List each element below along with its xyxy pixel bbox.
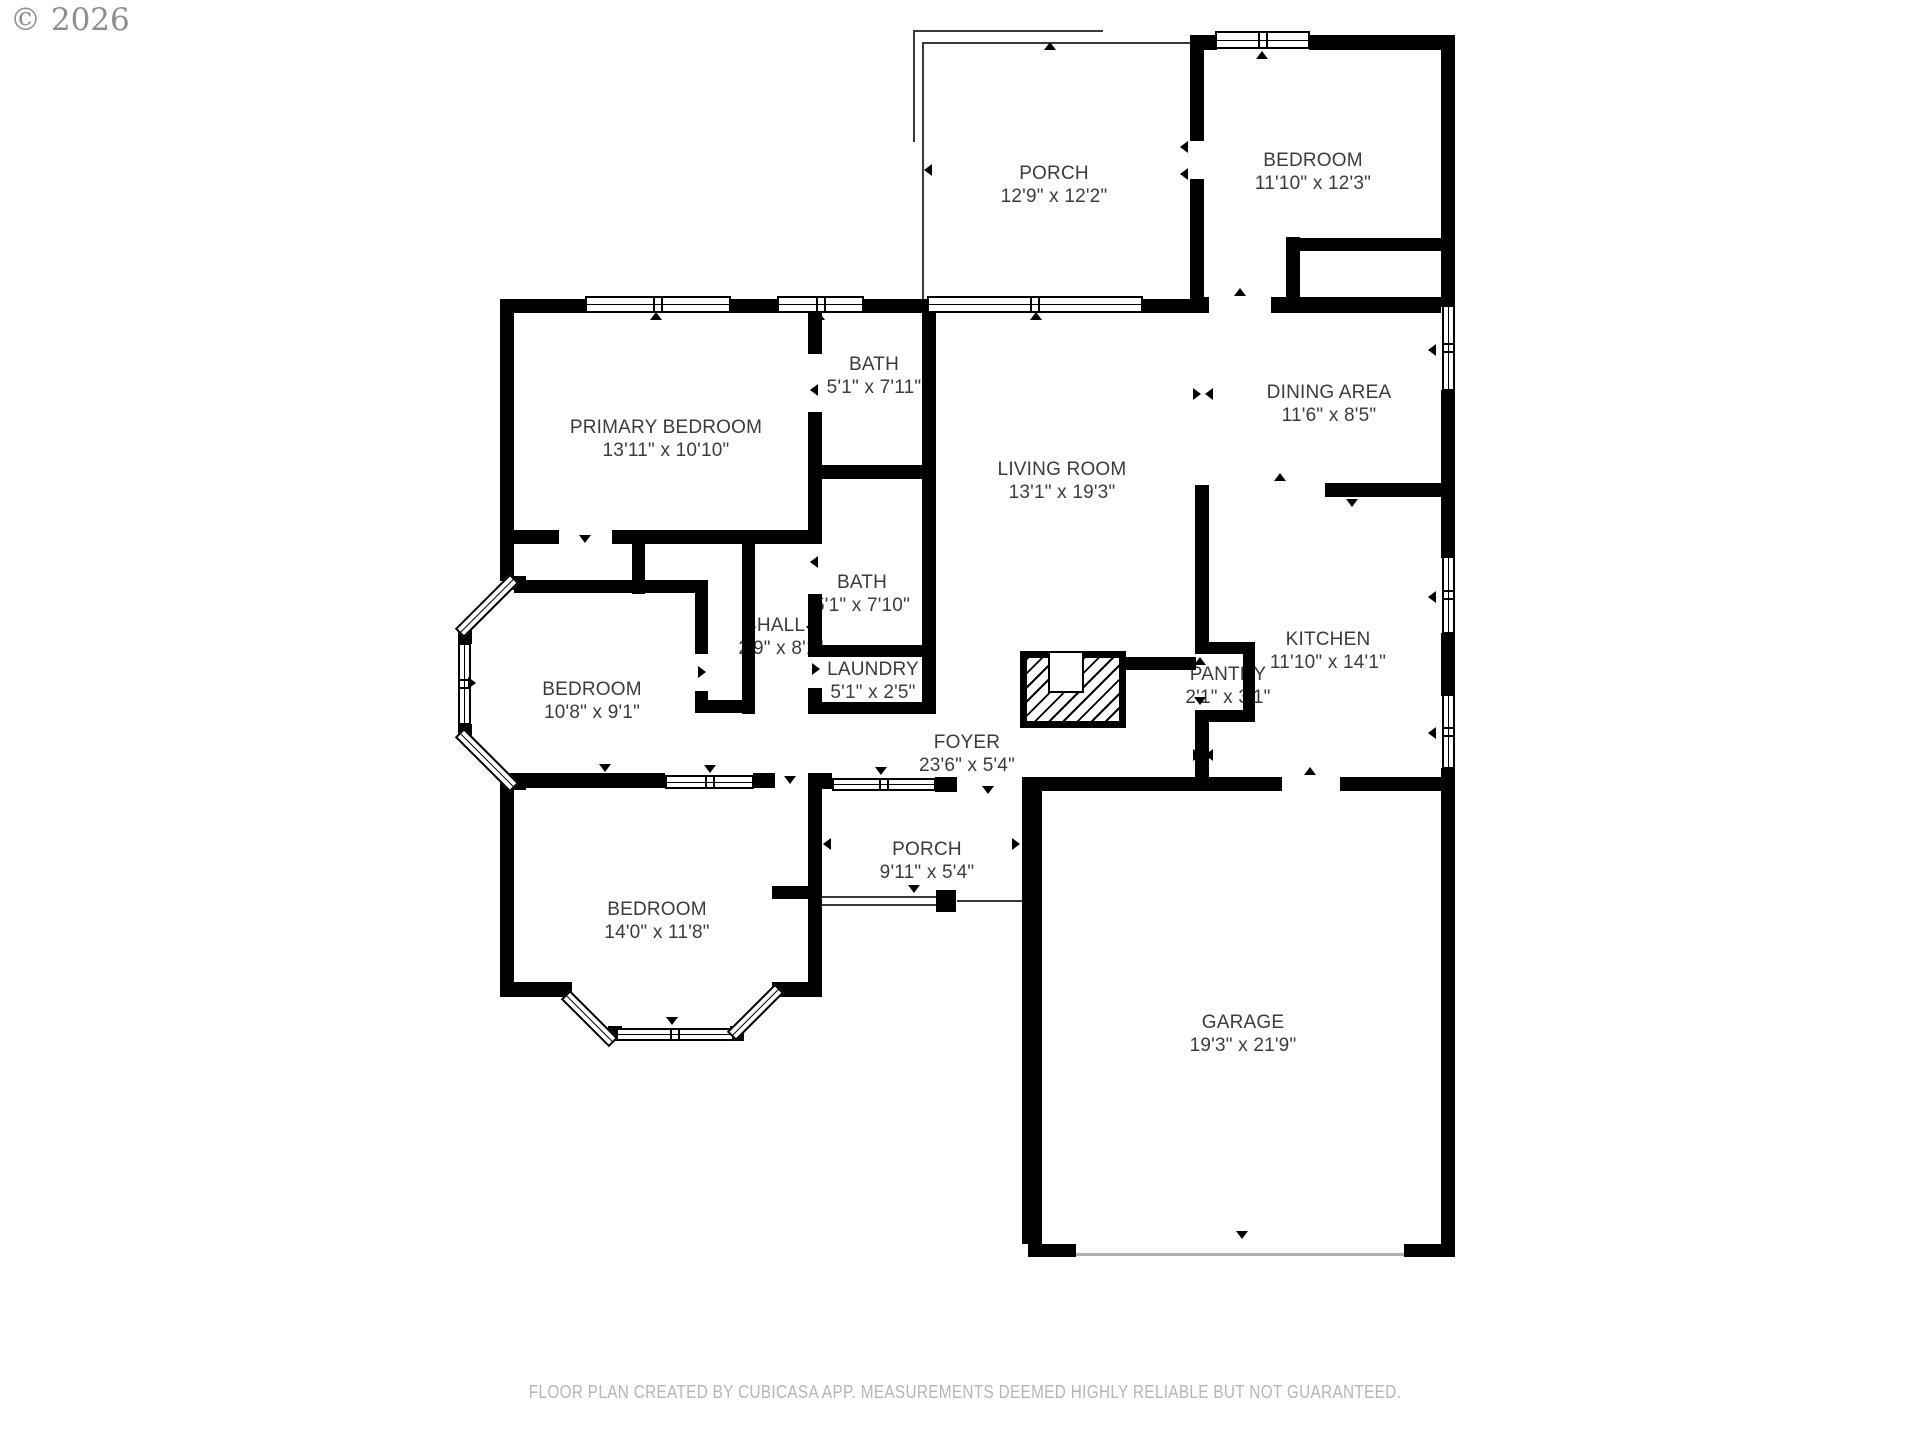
wall bbox=[1126, 657, 1196, 670]
window bbox=[585, 296, 731, 313]
door-arrow bbox=[1028, 1010, 1036, 1022]
door-arrow bbox=[1194, 697, 1206, 705]
room-dimensions: 23'6" x 5'4" bbox=[919, 755, 1015, 777]
door-arrow bbox=[982, 786, 994, 794]
door-arrow bbox=[599, 764, 611, 772]
wall bbox=[500, 982, 572, 997]
porch-outline bbox=[922, 42, 1190, 44]
window bbox=[1442, 556, 1455, 634]
door-arrow bbox=[1428, 344, 1436, 356]
wall bbox=[1441, 390, 1455, 485]
door-arrow bbox=[810, 384, 818, 396]
door-arrow bbox=[806, 621, 814, 633]
room-label-bedroom-bottom: BEDROOM 14'0" x 11'8" bbox=[604, 899, 709, 944]
door-arrow bbox=[1236, 1231, 1248, 1239]
room-name: FOYER bbox=[919, 732, 1015, 754]
copyright-text: © 2026 bbox=[10, 2, 130, 38]
room-label-laundry: LAUNDRY 5'1" x 2'5" bbox=[827, 659, 919, 704]
floor-plan: © 2026 PORCH 12'9" x 12'2" BEDROOM 11'10… bbox=[0, 0, 1920, 1440]
door-arrow bbox=[1234, 288, 1246, 296]
porch-outline bbox=[822, 904, 940, 906]
wall bbox=[1286, 237, 1300, 300]
window bbox=[927, 296, 1143, 313]
door-arrow bbox=[908, 885, 920, 893]
wall bbox=[1309, 35, 1455, 50]
room-dimensions: 11'10" x 14'1" bbox=[1270, 652, 1386, 674]
wall bbox=[863, 299, 927, 313]
wall bbox=[1441, 35, 1455, 307]
bay-window bbox=[561, 990, 618, 1047]
wall bbox=[1190, 49, 1204, 141]
room-name: LAUNDRY bbox=[827, 659, 919, 681]
wall bbox=[695, 700, 742, 713]
window bbox=[1442, 694, 1455, 769]
room-dimensions: 11'6" x 8'5" bbox=[1267, 405, 1392, 427]
door-arrow bbox=[813, 312, 825, 320]
wall bbox=[808, 594, 822, 645]
wall bbox=[1195, 710, 1255, 722]
wall bbox=[730, 299, 777, 313]
room-label-kitchen: KITCHEN 11'10" x 14'1" bbox=[1270, 629, 1386, 674]
door-arrow bbox=[579, 535, 591, 543]
wall bbox=[1441, 768, 1455, 791]
wall bbox=[1340, 777, 1441, 791]
door-arrow bbox=[1205, 749, 1213, 761]
door-arrow bbox=[875, 767, 887, 775]
room-dimensions: 13'1" x 19'3" bbox=[998, 482, 1127, 504]
room-name: BEDROOM bbox=[542, 679, 642, 701]
bay-window bbox=[455, 728, 519, 792]
wall bbox=[753, 773, 775, 788]
door-arrow bbox=[650, 312, 662, 320]
door-arrow bbox=[1194, 657, 1206, 665]
room-label-foyer: FOYER 23'6" x 5'4" bbox=[919, 732, 1015, 777]
footer-disclaimer: FLOOR PLAN CREATED BY CUBICASA APP. MEAS… bbox=[529, 1382, 1401, 1403]
door-arrow bbox=[698, 666, 706, 678]
room-name: BEDROOM bbox=[1255, 150, 1371, 172]
room-name: BEDROOM bbox=[604, 899, 709, 921]
room-label-primary-bedroom: PRIMARY BEDROOM 13'11" x 10'10" bbox=[570, 417, 762, 462]
door-arrow bbox=[1346, 499, 1358, 507]
wall bbox=[1441, 483, 1455, 558]
door-arrow bbox=[810, 556, 818, 568]
garage-door-line bbox=[1076, 1253, 1404, 1256]
wall bbox=[1441, 633, 1455, 696]
door-arrow bbox=[1256, 51, 1268, 59]
porch-outline bbox=[913, 30, 915, 142]
room-name: PORCH bbox=[1001, 163, 1108, 185]
door-arrow bbox=[502, 421, 510, 433]
porch-outline bbox=[913, 30, 1103, 32]
room-label-porch-top: PORCH 12'9" x 12'2" bbox=[1001, 163, 1108, 208]
wall bbox=[1404, 1244, 1455, 1257]
room-label-bedroom-mid: BEDROOM 10'8" x 9'1" bbox=[542, 679, 642, 724]
room-name: GARAGE bbox=[1190, 1012, 1297, 1034]
bay-window bbox=[455, 574, 519, 638]
wall bbox=[1042, 777, 1282, 791]
room-name: BATH bbox=[814, 572, 910, 594]
door-arrow bbox=[812, 663, 820, 675]
room-label-garage: GARAGE 19'3" x 21'9" bbox=[1190, 1012, 1297, 1057]
door-arrow bbox=[1030, 312, 1042, 320]
fireplace-notch bbox=[1048, 651, 1084, 693]
room-label-porch-bottom: PORCH 9'11" x 5'4" bbox=[880, 839, 975, 884]
window bbox=[1215, 31, 1310, 49]
room-name: BATH bbox=[827, 354, 922, 376]
room-dimensions: 12'9" x 12'2" bbox=[1001, 186, 1108, 208]
door-arrow bbox=[704, 765, 716, 773]
bay-window bbox=[727, 984, 784, 1041]
window bbox=[777, 296, 864, 313]
wall bbox=[514, 580, 698, 593]
wall bbox=[500, 530, 559, 544]
wall bbox=[922, 313, 936, 479]
wall bbox=[936, 890, 956, 912]
wall bbox=[922, 479, 936, 645]
window bbox=[832, 778, 936, 791]
wall bbox=[1195, 485, 1209, 642]
room-name: PORCH bbox=[880, 839, 975, 861]
door-arrow bbox=[666, 1017, 678, 1025]
window bbox=[665, 775, 754, 789]
door-arrow bbox=[924, 164, 932, 176]
door-arrow bbox=[1274, 473, 1286, 481]
room-dimensions: 11'10" x 12'3" bbox=[1255, 173, 1371, 195]
wall bbox=[1271, 297, 1441, 313]
room-name: DINING AREA bbox=[1267, 382, 1392, 404]
room-name: KITCHEN bbox=[1270, 629, 1386, 651]
wall bbox=[808, 702, 936, 714]
door-arrow bbox=[784, 776, 796, 784]
room-dimensions: 5'1" x 2'5" bbox=[827, 682, 919, 704]
wall bbox=[808, 688, 822, 702]
door-arrow bbox=[748, 621, 756, 633]
door-arrow bbox=[823, 838, 831, 850]
room-dimensions: 10'8" x 9'1" bbox=[542, 702, 642, 724]
room-label-bedroom-tr: BEDROOM 11'10" x 12'3" bbox=[1255, 150, 1371, 195]
room-dimensions: 19'3" x 21'9" bbox=[1190, 1035, 1297, 1057]
door-arrow bbox=[468, 677, 476, 689]
wall bbox=[1441, 791, 1455, 1244]
wall bbox=[695, 580, 708, 654]
wall bbox=[808, 645, 936, 657]
wall bbox=[1142, 299, 1192, 313]
window bbox=[1442, 305, 1455, 391]
door-arrow bbox=[1193, 749, 1201, 761]
door-arrow bbox=[1205, 388, 1213, 400]
room-label-living-room: LIVING ROOM 13'1" x 19'3" bbox=[998, 459, 1127, 504]
wall bbox=[772, 886, 822, 899]
porch-outline bbox=[822, 896, 940, 898]
wall bbox=[1325, 483, 1455, 497]
wall bbox=[808, 773, 832, 789]
wall bbox=[500, 788, 514, 989]
door-arrow bbox=[1193, 388, 1201, 400]
room-label-bath-upper: BATH 5'1" x 7'11" bbox=[827, 354, 922, 399]
wall bbox=[1028, 1244, 1076, 1257]
window bbox=[616, 1028, 734, 1041]
room-dimensions: 5'1" x 7'11" bbox=[827, 377, 922, 399]
room-label-bath-lower: BATH 5'1" x 7'10" bbox=[814, 572, 910, 617]
wall bbox=[1190, 297, 1209, 313]
door-arrow bbox=[1180, 141, 1188, 153]
room-name: PANTRY bbox=[1185, 664, 1270, 686]
room-dimensions: 5'1" x 7'10" bbox=[814, 595, 910, 617]
room-dimensions: 9'11" x 5'4" bbox=[880, 862, 975, 884]
wall bbox=[935, 777, 957, 792]
door-arrow bbox=[1428, 727, 1436, 739]
wall bbox=[1190, 35, 1217, 50]
door-arrow bbox=[1304, 767, 1316, 775]
door-arrow bbox=[1044, 42, 1056, 50]
room-name: LIVING ROOM bbox=[998, 459, 1127, 481]
door-arrow bbox=[1012, 838, 1020, 850]
room-name: PRIMARY BEDROOM bbox=[570, 417, 762, 439]
room-dimensions: 14'0" x 11'8" bbox=[604, 922, 709, 944]
room-label-dining-area: DINING AREA 11'6" x 8'5" bbox=[1267, 382, 1392, 427]
porch-outline bbox=[957, 900, 1022, 902]
wall bbox=[1190, 179, 1204, 299]
wall bbox=[808, 465, 936, 479]
door-arrow bbox=[1428, 591, 1436, 603]
door-arrow bbox=[1180, 168, 1188, 180]
wall bbox=[1299, 238, 1441, 251]
room-dimensions: 13'11" x 10'10" bbox=[570, 440, 762, 462]
